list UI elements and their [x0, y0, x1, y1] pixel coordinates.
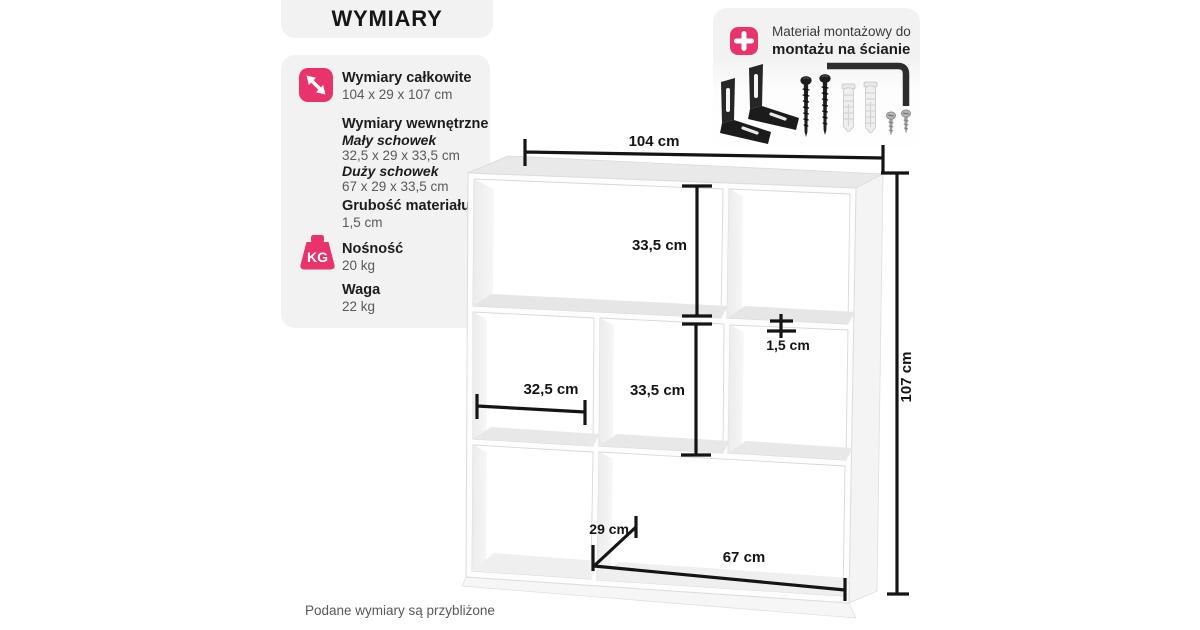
- spec-overall: Wymiary całkowite 104 x 29 x 107 cm: [342, 71, 472, 102]
- spec-overall-label: Wymiary całkowite: [342, 71, 472, 87]
- spec-overall-value: 104 x 29 x 107 cm: [342, 87, 472, 103]
- dim-row2-label: 33,5 cm: [630, 382, 685, 399]
- dimensions-infographic: WYMIARY Wymiary całkowite 104 x 29 x 107…: [0, 0, 1200, 630]
- plus-icon: [730, 27, 758, 55]
- shelf-compartment: [473, 312, 600, 446]
- resize-arrows-icon: [299, 68, 333, 102]
- spec-weight: Waga 22 kg: [342, 283, 380, 314]
- kg-icon-text: KG: [307, 249, 328, 265]
- shelf-compartment: [727, 189, 855, 324]
- dim-thickness-label: 1,5 cm: [766, 337, 810, 353]
- mounting-text-line1: Materiał montażowy do: [772, 24, 911, 39]
- kg-weight-icon: KG: [299, 234, 336, 273]
- dim-small-width-label: 32,5 cm: [523, 381, 578, 398]
- spec-capacity: Nośność 20 kg: [342, 242, 403, 273]
- dim-row1-label: 33,5 cm: [632, 237, 687, 254]
- dim-width-label: 104 cm: [629, 133, 680, 150]
- footer-note: Podane wymiary są przybliżone: [305, 603, 495, 618]
- header-box: WYMIARY: [281, 0, 493, 38]
- dim-depth-label: 29 cm: [589, 521, 629, 537]
- dim-height-label: 107 cm: [898, 352, 915, 403]
- shelf-compartment: [473, 179, 728, 318]
- dim-large-width-label: 67 cm: [723, 549, 766, 566]
- spec-weight-label: Waga: [342, 283, 380, 299]
- spec-weight-value: 22 kg: [342, 299, 380, 315]
- shelf-compartment: [472, 445, 599, 579]
- spec-capacity-label: Nośność: [342, 242, 403, 258]
- spec-capacity-value: 20 kg: [342, 258, 403, 274]
- page-title: WYMIARY: [331, 6, 442, 32]
- shelf-diagram: 104 cm 107 cm 33,5 cm 33,5 cm 1,5 cm 32,…: [430, 120, 930, 630]
